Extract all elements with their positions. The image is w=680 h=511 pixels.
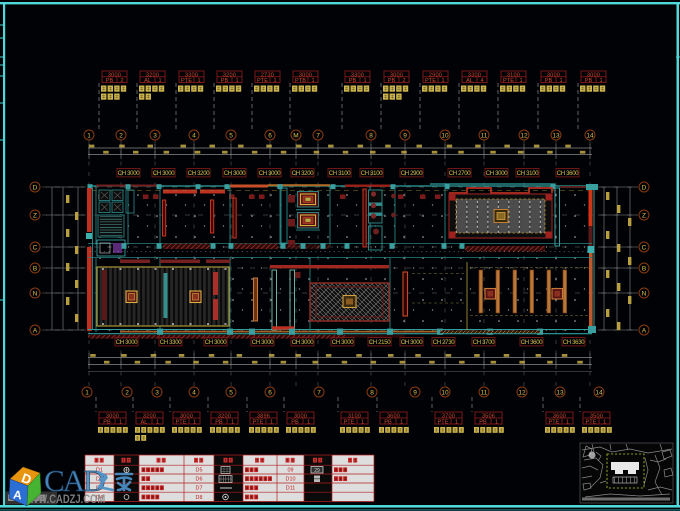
svg-text:1: 1 bbox=[119, 419, 122, 425]
svg-text:Z: Z bbox=[33, 212, 37, 219]
svg-text:N: N bbox=[642, 290, 647, 297]
svg-text:13: 13 bbox=[556, 389, 564, 396]
svg-text:CH 3200: CH 3200 bbox=[292, 171, 315, 177]
svg-text:1: 1 bbox=[455, 419, 458, 425]
svg-text:Z: Z bbox=[642, 212, 646, 219]
svg-text:10: 10 bbox=[441, 132, 449, 139]
svg-text:CH 3000: CH 3000 bbox=[259, 171, 282, 177]
svg-text:1: 1 bbox=[197, 78, 200, 84]
svg-text:CH 3630: CH 3630 bbox=[563, 340, 586, 346]
svg-text:CH 3600: CH 3600 bbox=[557, 171, 580, 177]
svg-text:1: 1 bbox=[519, 78, 522, 84]
svg-text:A: A bbox=[33, 327, 38, 334]
svg-text:6: 6 bbox=[268, 132, 272, 139]
svg-text:1: 1 bbox=[495, 419, 498, 425]
svg-text:2: 2 bbox=[119, 132, 123, 139]
svg-text:1: 1 bbox=[361, 419, 364, 425]
svg-text:D6: D6 bbox=[196, 477, 203, 483]
svg-text:3: 3 bbox=[155, 389, 159, 396]
svg-text:11: 11 bbox=[481, 132, 488, 139]
svg-text:5: 5 bbox=[229, 132, 233, 139]
svg-text:CH 3000: CH 3000 bbox=[205, 340, 228, 346]
svg-text:7: 7 bbox=[317, 389, 321, 396]
svg-text:1: 1 bbox=[235, 78, 238, 84]
svg-text:29: 29 bbox=[314, 468, 320, 474]
svg-text:8: 8 bbox=[370, 389, 374, 396]
svg-text:CH 3100: CH 3100 bbox=[361, 171, 384, 177]
svg-text:PB: PB bbox=[388, 78, 396, 84]
svg-text:1: 1 bbox=[400, 419, 403, 425]
svg-text:CH 3700: CH 3700 bbox=[473, 340, 496, 346]
svg-text:PTE: PTE bbox=[344, 419, 355, 425]
svg-text:CH 2700: CH 2700 bbox=[449, 171, 472, 177]
svg-text:CH 2730: CH 2730 bbox=[433, 340, 456, 346]
svg-text:C: C bbox=[642, 244, 647, 251]
svg-text:D5: D5 bbox=[196, 468, 203, 474]
svg-text:PTE: PTE bbox=[176, 419, 187, 425]
svg-text:CAD: CAD bbox=[44, 463, 105, 498]
svg-text:PTE: PTE bbox=[438, 419, 449, 425]
svg-text:14: 14 bbox=[595, 389, 603, 396]
svg-text:1: 1 bbox=[566, 419, 569, 425]
svg-text:2: 2 bbox=[120, 78, 123, 84]
svg-text:CH 3100: CH 3100 bbox=[329, 171, 352, 177]
svg-text:1: 1 bbox=[307, 419, 310, 425]
svg-text:PTE: PTE bbox=[586, 419, 597, 425]
svg-text:9: 9 bbox=[413, 389, 417, 396]
svg-text:CH 3000: CH 3000 bbox=[252, 340, 275, 346]
svg-text:D: D bbox=[33, 184, 38, 191]
svg-text:CH 2150: CH 2150 bbox=[369, 340, 392, 346]
svg-text:4: 4 bbox=[192, 132, 196, 139]
svg-text:6: 6 bbox=[268, 389, 272, 396]
svg-text:C: C bbox=[33, 244, 38, 251]
svg-text:D: D bbox=[642, 184, 647, 191]
svg-text:PB: PB bbox=[349, 78, 357, 84]
svg-text:1: 1 bbox=[158, 78, 161, 84]
svg-text:12: 12 bbox=[518, 389, 526, 396]
svg-text:AL: AL bbox=[144, 78, 151, 84]
svg-text:CH 3600: CH 3600 bbox=[521, 340, 544, 346]
svg-text:PB: PB bbox=[106, 78, 114, 84]
svg-text:N: N bbox=[33, 290, 38, 297]
svg-text:CH 3000: CH 3000 bbox=[332, 340, 355, 346]
svg-text:CH 3000: CH 3000 bbox=[486, 171, 509, 177]
svg-text:PTE: PTE bbox=[425, 78, 436, 84]
svg-text:CH 3000: CH 3000 bbox=[401, 340, 424, 346]
svg-text:AL: AL bbox=[466, 78, 473, 84]
svg-text:1: 1 bbox=[193, 419, 196, 425]
svg-text:CH 3000: CH 3000 bbox=[153, 171, 176, 177]
svg-text:M: M bbox=[293, 132, 298, 139]
svg-text:4: 4 bbox=[192, 389, 196, 396]
svg-text:2: 2 bbox=[402, 78, 405, 84]
svg-text:D10: D10 bbox=[286, 477, 296, 483]
svg-text:1: 1 bbox=[599, 78, 602, 84]
svg-text:CH 3000: CH 3000 bbox=[224, 171, 247, 177]
svg-text:8: 8 bbox=[369, 132, 373, 139]
svg-text:B: B bbox=[642, 265, 646, 272]
svg-text:PB: PB bbox=[103, 419, 111, 425]
svg-text:PTE: PTE bbox=[257, 78, 268, 84]
svg-text:PB: PB bbox=[221, 78, 229, 84]
svg-text:CH 3200: CH 3200 bbox=[188, 171, 211, 177]
svg-text:1: 1 bbox=[87, 132, 91, 139]
svg-text:PB: PB bbox=[545, 78, 553, 84]
svg-text:CH 3100: CH 3100 bbox=[517, 171, 540, 177]
svg-text:1: 1 bbox=[156, 419, 159, 425]
svg-text:1: 1 bbox=[85, 389, 89, 396]
svg-text:7: 7 bbox=[316, 132, 320, 139]
svg-text:CH 3000: CH 3000 bbox=[292, 340, 315, 346]
svg-text:09: 09 bbox=[288, 468, 294, 474]
svg-text:PTB: PTB bbox=[295, 78, 306, 84]
svg-text:1: 1 bbox=[603, 419, 606, 425]
svg-text:PTE: PTE bbox=[503, 78, 514, 84]
svg-text:9: 9 bbox=[403, 132, 407, 139]
svg-text:A: A bbox=[642, 327, 647, 334]
svg-text:PB: PB bbox=[291, 419, 299, 425]
svg-text:10: 10 bbox=[441, 389, 449, 396]
svg-text:AL: AL bbox=[141, 419, 148, 425]
svg-text:PTE: PTE bbox=[253, 419, 264, 425]
svg-text:D7: D7 bbox=[196, 486, 203, 492]
svg-text:PB: PB bbox=[585, 78, 593, 84]
svg-text:1: 1 bbox=[273, 78, 276, 84]
svg-text:1: 1 bbox=[231, 419, 234, 425]
svg-text:1: 1 bbox=[363, 78, 366, 84]
svg-text:CH 3000: CH 3000 bbox=[118, 171, 141, 177]
svg-text:11: 11 bbox=[481, 389, 488, 396]
svg-text:1: 1 bbox=[441, 78, 444, 84]
svg-text:14: 14 bbox=[586, 132, 594, 139]
svg-text:1: 1 bbox=[559, 78, 562, 84]
svg-text:CH 2900: CH 2900 bbox=[401, 171, 424, 177]
svg-text:1: 1 bbox=[311, 78, 314, 84]
svg-text:B: B bbox=[33, 265, 37, 272]
svg-text:3: 3 bbox=[153, 132, 157, 139]
svg-text:1: 1 bbox=[270, 419, 273, 425]
svg-text:13: 13 bbox=[552, 132, 560, 139]
svg-text:2: 2 bbox=[125, 389, 129, 396]
svg-text:4: 4 bbox=[480, 78, 483, 84]
svg-text:CH 3300: CH 3300 bbox=[160, 340, 183, 346]
svg-text:5: 5 bbox=[229, 389, 233, 396]
svg-text:CH 3000: CH 3000 bbox=[116, 340, 139, 346]
svg-text:PB: PB bbox=[215, 419, 223, 425]
svg-text:D8: D8 bbox=[196, 495, 203, 501]
svg-text:PB: PB bbox=[384, 419, 392, 425]
svg-text:PB: PB bbox=[479, 419, 487, 425]
svg-text:PTE: PTE bbox=[181, 78, 192, 84]
svg-text:PTE: PTE bbox=[549, 419, 560, 425]
svg-text:12: 12 bbox=[520, 132, 528, 139]
svg-text:D11: D11 bbox=[286, 486, 296, 492]
